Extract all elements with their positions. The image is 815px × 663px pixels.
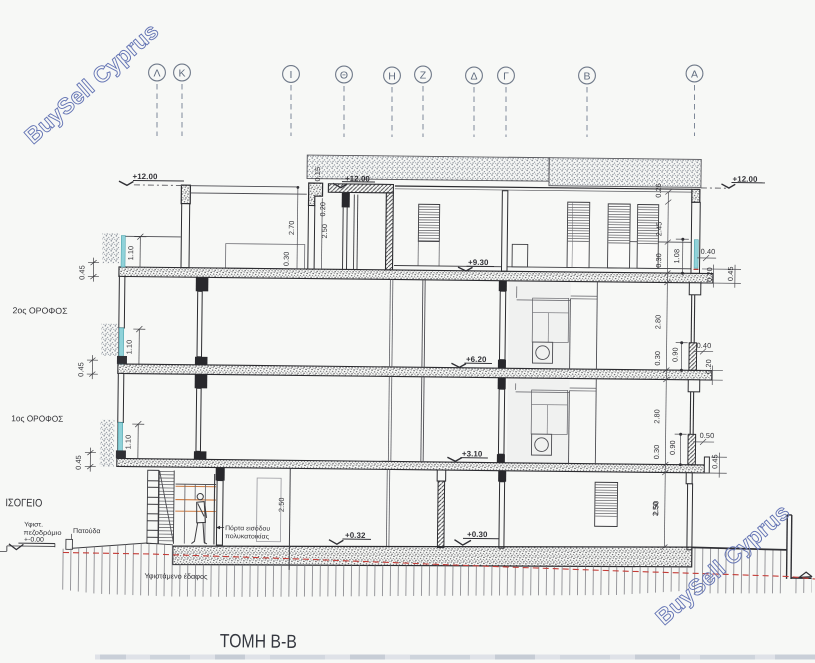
svg-text:0.30: 0.30 — [653, 351, 662, 366]
svg-text:0.30: 0.30 — [654, 253, 663, 268]
svg-text:Κ: Κ — [178, 67, 185, 79]
svg-text:Η: Η — [388, 70, 396, 82]
svg-text:0.45: 0.45 — [710, 454, 719, 469]
svg-text:Ζ: Ζ — [420, 69, 427, 81]
svg-text:0.45: 0.45 — [76, 362, 85, 377]
svg-text:Γ: Γ — [503, 70, 509, 82]
svg-text:ΤΟΜΗ Β-Β: ΤΟΜΗ Β-Β — [220, 631, 297, 653]
svg-text:0.45: 0.45 — [77, 265, 86, 280]
svg-text:Θ: Θ — [340, 69, 348, 81]
svg-text:0.90: 0.90 — [670, 347, 679, 362]
svg-text:0.40: 0.40 — [697, 341, 712, 350]
svg-text:2.80: 2.80 — [652, 409, 661, 424]
svg-text:Υφιστ.: Υφιστ. — [24, 521, 43, 528]
svg-text:1.10: 1.10 — [123, 435, 132, 450]
svg-text:Πόρτα εισόδου: Πόρτα εισόδου — [225, 524, 270, 533]
svg-text:2.45: 2.45 — [654, 222, 663, 237]
svg-text:0.30: 0.30 — [282, 251, 291, 266]
svg-text:0.45: 0.45 — [74, 455, 83, 470]
svg-text:+0.30: +0.30 — [467, 530, 488, 539]
svg-text:1.10: 1.10 — [126, 246, 135, 261]
svg-text:0.40: 0.40 — [701, 247, 716, 256]
svg-text:ΙΣΟΓΕΙΟ: ΙΣΟΓΕΙΟ — [5, 497, 43, 509]
svg-text:1.08: 1.08 — [672, 249, 681, 264]
svg-text:0.26: 0.26 — [654, 183, 663, 198]
svg-text:+-0.00: +-0.00 — [24, 536, 44, 543]
svg-text:1ος ΟΡΟΦΟΣ: 1ος ΟΡΟΦΟΣ — [11, 413, 63, 424]
svg-text:Α: Α — [691, 68, 698, 80]
svg-text:0.45: 0.45 — [726, 266, 735, 281]
svg-text:Β: Β — [583, 70, 590, 82]
svg-text:Υφιστάμενο έδαφος: Υφιστάμενο έδαφος — [145, 571, 209, 581]
svg-text:Ι: Ι — [290, 69, 293, 81]
svg-text:2.50: 2.50 — [277, 497, 286, 512]
svg-text:0.50: 0.50 — [700, 431, 715, 440]
svg-text:+3.10: +3.10 — [462, 449, 483, 458]
svg-text:2.70: 2.70 — [287, 220, 296, 235]
svg-text:1.10: 1.10 — [125, 340, 134, 355]
svg-text:2.80: 2.80 — [653, 315, 662, 330]
svg-text:+12.00: +12.00 — [132, 172, 158, 181]
svg-text:0.30: 0.30 — [652, 445, 661, 460]
svg-text:0.20: 0.20 — [318, 202, 327, 217]
svg-text:Δ: Δ — [470, 70, 477, 82]
svg-text:Λ: Λ — [153, 67, 160, 79]
svg-text:2.50: 2.50 — [651, 502, 660, 517]
svg-text:0.20: 0.20 — [705, 267, 714, 282]
svg-text:2.50: 2.50 — [320, 224, 329, 239]
svg-text:0.20: 0.20 — [704, 359, 713, 374]
svg-text:Πατούδα: Πατούδα — [73, 527, 101, 535]
svg-text:2ος ΟΡΟΦΟΣ: 2ος ΟΡΟΦΟΣ — [12, 305, 67, 316]
svg-text:πολυκατοικίας: πολυκατοικίας — [225, 532, 269, 540]
svg-text:+9.30: +9.30 — [468, 258, 489, 267]
svg-text:0.90: 0.90 — [668, 440, 677, 455]
svg-text:+6.20: +6.20 — [466, 355, 487, 364]
svg-text:0.15: 0.15 — [313, 167, 322, 182]
